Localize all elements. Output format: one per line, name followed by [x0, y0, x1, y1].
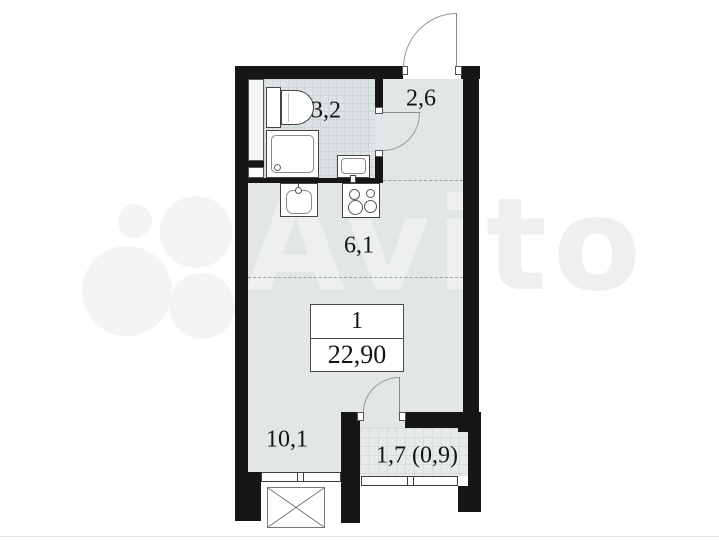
window-mullion [303, 473, 304, 481]
room-label-balcony: 1,7 (0,9) [376, 443, 458, 470]
bathroom-sink-basin [341, 158, 366, 174]
wall-shaft-divider [243, 161, 264, 167]
total-area-value: 22,90 [311, 339, 403, 371]
wall-left-pier [235, 472, 261, 521]
kitchen-faucet-icon [295, 187, 302, 194]
avito-logo-dot-bottom-left [82, 246, 172, 336]
floorplan-canvas: Avito [0, 0, 719, 540]
avito-logo-dot-bottom-right [169, 273, 235, 339]
balcony-door-frame-left [357, 412, 364, 421]
entrance-door-frame-left [402, 66, 408, 75]
image-bottom-border [0, 536, 719, 537]
avito-logo-dot-small [118, 204, 152, 238]
rooms-count-value: 1 [311, 305, 403, 339]
window-mullion [407, 477, 408, 485]
room-label-living-room: 10,1 [266, 427, 308, 454]
wall-right [463, 66, 479, 430]
bathroom-sink-faucet-icon [350, 175, 356, 183]
window-mullion [340, 473, 341, 481]
zone-divider-kitchen-living [248, 277, 463, 278]
balcony-door-frame-right [399, 412, 406, 421]
stove-burner-top-right [366, 189, 375, 198]
balcony-window [361, 476, 458, 486]
window-mullion [361, 477, 362, 485]
bay-window-x-icon [267, 487, 325, 528]
wall-balcony-right [468, 424, 481, 486]
entrance-door-arc [403, 13, 457, 68]
entrance-door-frame-right [455, 66, 462, 75]
living-room-window [261, 472, 341, 482]
duct-box [248, 167, 264, 178]
room-label-kitchen: 6,1 [344, 233, 374, 260]
balcony-door-leaf [399, 377, 400, 412]
window-mullion [297, 473, 298, 481]
wall-balcony-pier [458, 486, 481, 512]
apartment-info-box: 1 22,90 [310, 304, 404, 372]
wall-left [235, 66, 248, 472]
window-mullion [457, 477, 458, 485]
duct-shaft [248, 79, 264, 161]
stove-burner-bottom-left [348, 200, 363, 215]
bathroom-door-frame-bottom [375, 150, 383, 157]
room-label-hallway: 2,6 [406, 86, 436, 113]
bathroom-door-frame-top [375, 107, 383, 114]
shower-drain-icon [274, 164, 281, 171]
window-mullion [261, 473, 262, 481]
toilet-seam [288, 93, 289, 122]
zone-divider-hallway-kitchen [383, 180, 463, 181]
stove-burner-top-left [349, 189, 360, 200]
stove-burner-bottom-right [364, 200, 377, 213]
window-mullion [413, 477, 414, 485]
entrance-door-leaf [456, 13, 457, 67]
room-label-bathroom: 3,2 [311, 98, 341, 125]
wall-center-pier [341, 412, 360, 523]
toilet-tank-icon [266, 87, 281, 128]
wall-bathroom-bottom [235, 178, 383, 183]
avito-logo-dot-top-right [160, 196, 232, 268]
wall-top-left [235, 66, 403, 79]
